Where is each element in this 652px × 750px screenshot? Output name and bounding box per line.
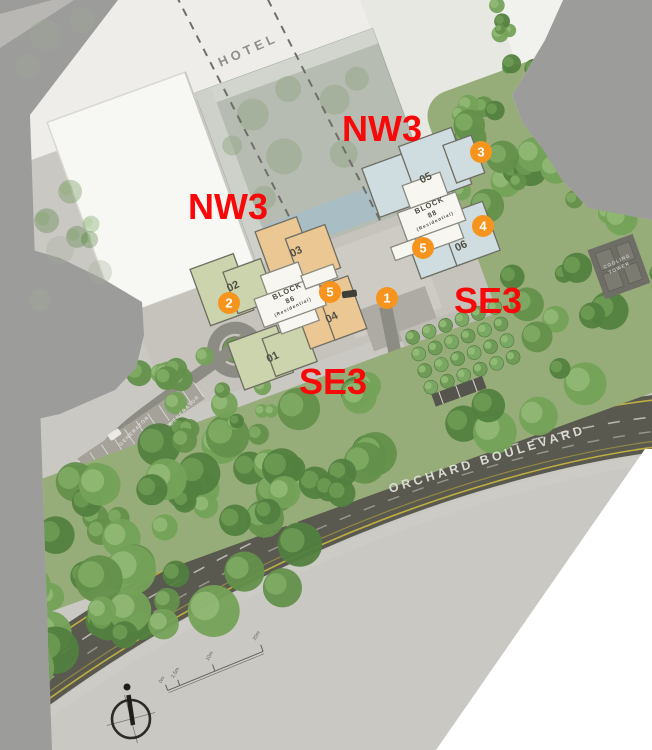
marker-2: 2 <box>218 292 240 314</box>
svg-text:1: 1 <box>383 291 390 306</box>
label-nw3-right: NW3 <box>342 108 422 149</box>
svg-text:5: 5 <box>326 285 333 300</box>
svg-text:3: 3 <box>477 145 484 160</box>
label-se3-left: SE3 <box>299 361 367 402</box>
svg-text:5: 5 <box>419 241 426 256</box>
marker-3: 3 <box>470 141 492 163</box>
site-plan-screenshot: COOLING TOWER HOTEL <box>0 0 652 750</box>
site-plan-map: COOLING TOWER HOTEL <box>0 0 652 750</box>
compass-needle-tip <box>124 684 131 691</box>
svg-text:2: 2 <box>225 296 232 311</box>
marker-1: 1 <box>376 287 398 309</box>
marker-5-block86: 5 <box>319 281 341 303</box>
label-se3-right: SE3 <box>454 280 522 321</box>
svg-text:4: 4 <box>479 219 487 234</box>
label-nw3-left: NW3 <box>188 186 268 227</box>
marker-4: 4 <box>472 215 494 237</box>
marker-5-block88: 5 <box>412 237 434 259</box>
